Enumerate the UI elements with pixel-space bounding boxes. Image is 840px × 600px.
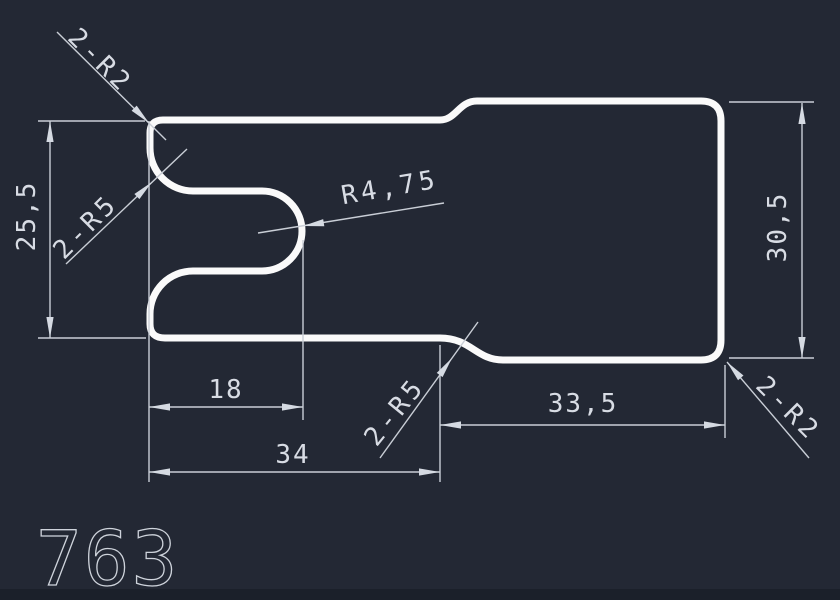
dimension-label: 25,5 [12, 181, 42, 252]
drawing-canvas[interactable]: 25,5 30,5 18 34 [0, 0, 840, 600]
dimension-label: 33,5 [548, 389, 619, 419]
cad-viewport[interactable]: 25,5 30,5 18 34 [0, 0, 840, 600]
dimension-label: 34 [275, 440, 310, 470]
part-number[interactable]: 763 [36, 514, 179, 600]
dimension-label: 30,5 [763, 192, 793, 263]
dimension-label: 18 [208, 375, 243, 405]
